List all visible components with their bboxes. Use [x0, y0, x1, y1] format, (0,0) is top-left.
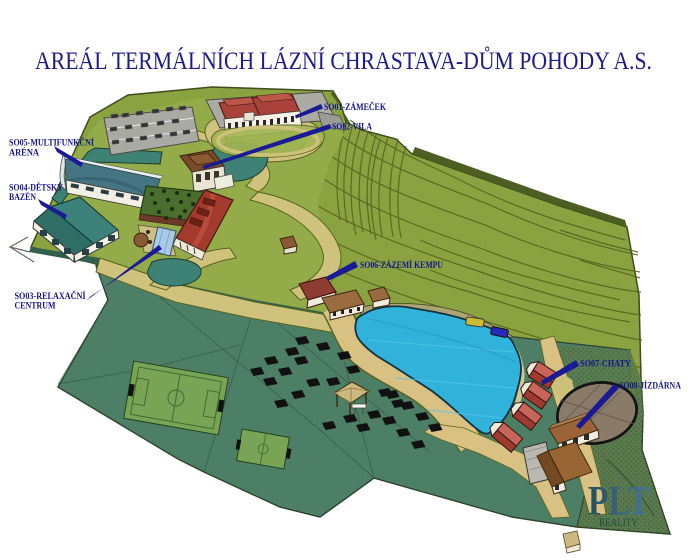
svg-text:SO03-RELAXAČNÍ: SO03-RELAXAČNÍ [15, 289, 86, 302]
svg-text:BAZÉN: BAZÉN [9, 191, 36, 203]
svg-text:ARÉNA: ARÉNA [9, 147, 39, 159]
svg-text:REALITY: REALITY [599, 515, 638, 529]
svg-text:SO08-JÍZDÁRNA: SO08-JÍZDÁRNA [619, 380, 681, 392]
svg-text:SO02-VILA: SO02-VILA [332, 123, 372, 133]
svg-text:CENTRUM: CENTRUM [15, 302, 56, 312]
svg-text:SO06-ZÁZEMÍ KEMPU: SO06-ZÁZEMÍ KEMPU [360, 259, 443, 271]
svg-text:AREÁL TERMÁLNÍCH LÁZNÍ CHRASTA: AREÁL TERMÁLNÍCH LÁZNÍ CHRASTAVA-DŮM POH… [35, 46, 652, 75]
svg-text:SO04-DĚTSKÝ: SO04-DĚTSKÝ [9, 182, 63, 194]
svg-text:SO07-CHATY: SO07-CHATY [580, 360, 631, 370]
